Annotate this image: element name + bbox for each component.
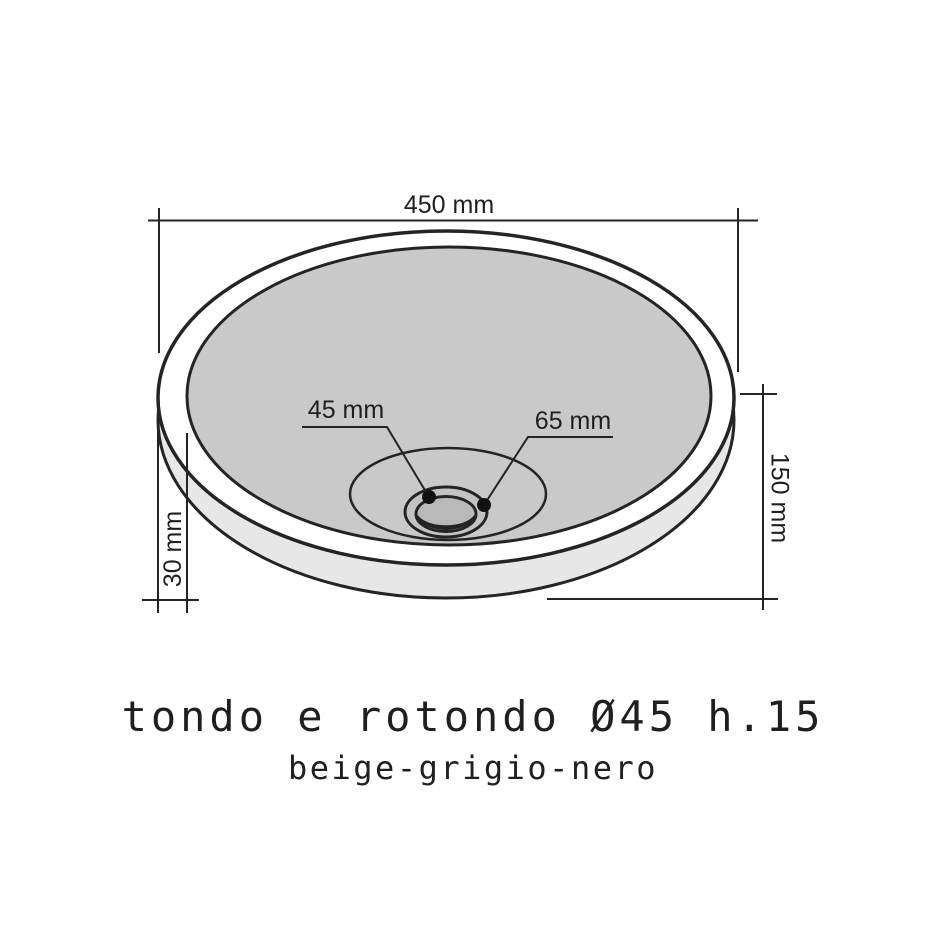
technical-drawing-page: 450 mm 45 mm 65 mm 150 mm 30 mm tondo e …	[0, 0, 950, 950]
width-dimension-label: 450 mm	[404, 191, 494, 219]
basin	[158, 231, 734, 598]
sink-dimension-diagram: 450 mm 45 mm 65 mm 150 mm 30 mm tondo e …	[0, 0, 950, 950]
drain-hole-dimension-label: 45 mm	[308, 396, 384, 424]
drain-flange-marker-dot	[477, 498, 491, 512]
product-subtitle: beige-grigio-nero	[288, 749, 658, 787]
height-dimension-label: 150 mm	[765, 453, 793, 543]
base-dimension-label: 30 mm	[159, 511, 187, 587]
drain-flange-dimension-label: 65 mm	[535, 407, 611, 435]
drain-hole-marker-dot	[422, 490, 436, 504]
product-title: tondo e rotondo Ø45 h.15	[122, 692, 825, 741]
